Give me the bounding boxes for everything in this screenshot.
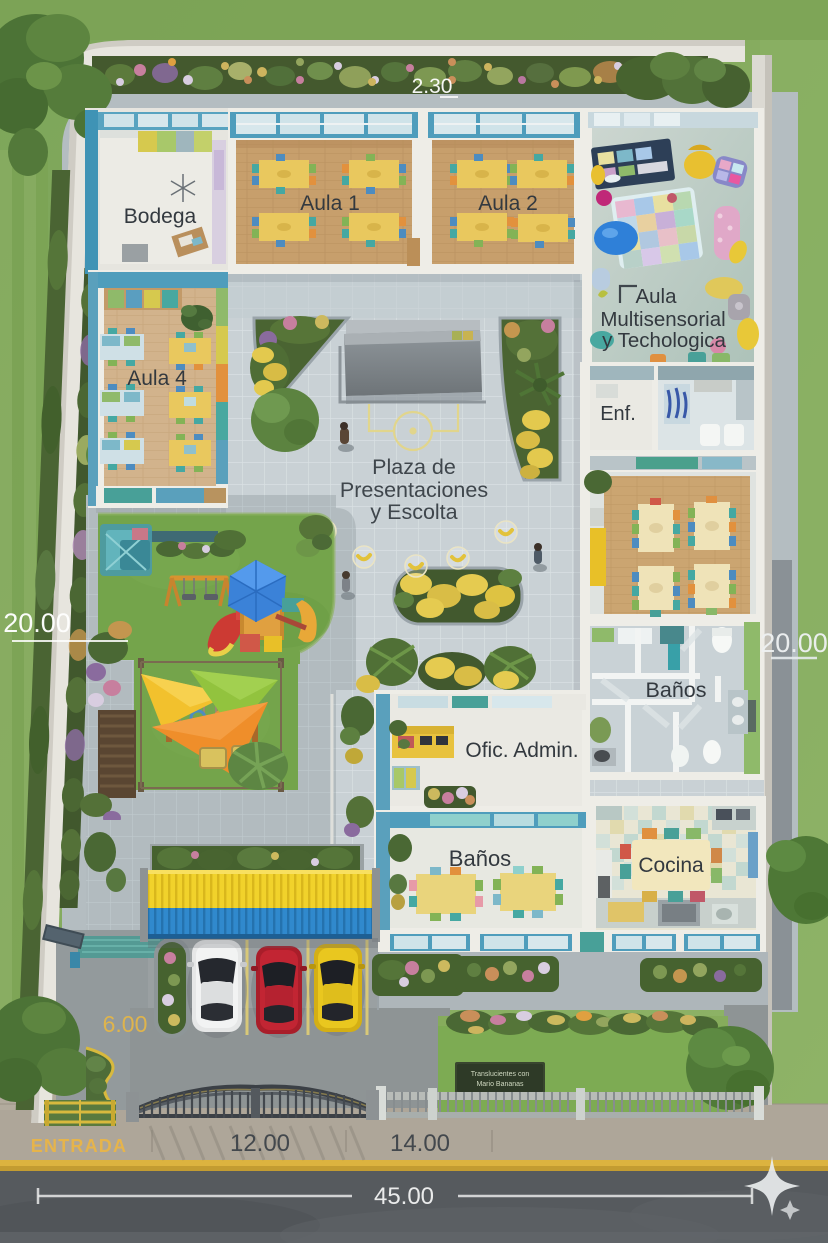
svg-text:ENTRADA: ENTRADA bbox=[31, 1136, 127, 1156]
svg-text:Presentaciones: Presentaciones bbox=[340, 478, 488, 502]
svg-text:12.00: 12.00 bbox=[230, 1130, 290, 1157]
svg-text:Aula 4: Aula 4 bbox=[127, 367, 187, 390]
svg-text:Translucientes con: Translucientes con bbox=[471, 1071, 530, 1078]
svg-text:Aula: Aula bbox=[635, 285, 677, 308]
svg-text:Ofic. Admin.: Ofic. Admin. bbox=[465, 739, 578, 762]
svg-text:y Escolta: y Escolta bbox=[370, 500, 457, 524]
svg-text:14.00: 14.00 bbox=[390, 1130, 450, 1157]
svg-text:Plaza de: Plaza de bbox=[372, 455, 456, 479]
svg-text:Baños: Baños bbox=[449, 846, 511, 871]
svg-text:Aula 2: Aula 2 bbox=[478, 192, 538, 215]
svg-text:y Techologica: y Techologica bbox=[602, 329, 726, 352]
svg-text:Cocina: Cocina bbox=[638, 854, 704, 877]
svg-text:45.00: 45.00 bbox=[374, 1183, 434, 1210]
svg-text:Baños: Baños bbox=[646, 678, 707, 702]
svg-text:20.00: 20.00 bbox=[3, 608, 71, 638]
svg-text:Aula 1: Aula 1 bbox=[300, 192, 360, 215]
svg-text:Mario Bananas: Mario Bananas bbox=[476, 1081, 524, 1088]
svg-text:2.30: 2.30 bbox=[412, 75, 453, 98]
svg-text:20.00: 20.00 bbox=[760, 628, 828, 658]
svg-text:Multisensorial: Multisensorial bbox=[600, 308, 725, 331]
svg-text:6.00: 6.00 bbox=[103, 1011, 148, 1037]
svg-text:Enf.: Enf. bbox=[600, 403, 636, 425]
svg-text:Bodega: Bodega bbox=[124, 205, 197, 228]
